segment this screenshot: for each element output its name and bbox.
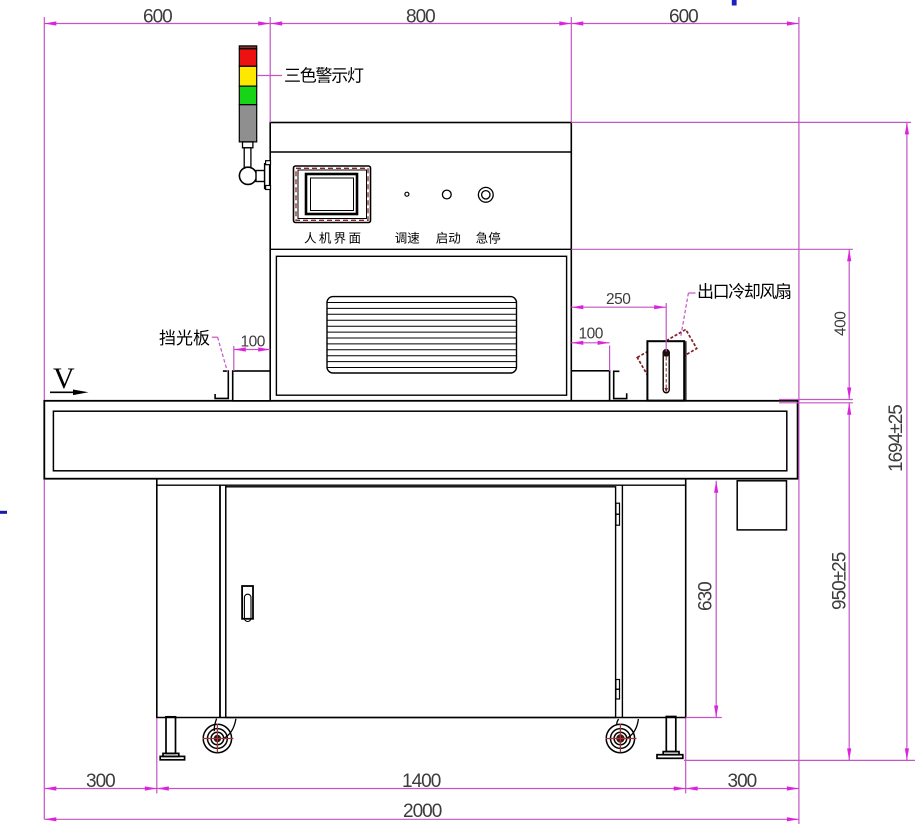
svg-text:挡光板: 挡光板: [159, 329, 210, 348]
svg-text:100: 100: [579, 326, 604, 343]
svg-text:1694±25: 1694±25: [886, 405, 907, 472]
svg-text:300: 300: [728, 771, 757, 792]
svg-text:V: V: [53, 362, 75, 395]
svg-text:100: 100: [241, 334, 266, 351]
svg-text:250: 250: [606, 291, 631, 308]
svg-text:急停: 急停: [476, 231, 501, 246]
svg-text:630: 630: [696, 582, 717, 611]
svg-text:出口冷却风扇: 出口冷却风扇: [697, 283, 792, 302]
svg-text:调速: 调速: [395, 232, 420, 246]
svg-text:950±25: 950±25: [830, 552, 851, 610]
svg-text:800: 800: [406, 7, 435, 28]
svg-text:2000: 2000: [403, 801, 442, 822]
svg-text:300: 300: [86, 771, 115, 792]
svg-text:600: 600: [143, 7, 172, 28]
svg-text:400: 400: [833, 311, 850, 336]
svg-text:三色警示灯: 三色警示灯: [284, 67, 364, 86]
svg-text:启动: 启动: [436, 232, 461, 246]
svg-text:1400: 1400: [402, 771, 441, 792]
svg-text:600: 600: [669, 7, 698, 28]
